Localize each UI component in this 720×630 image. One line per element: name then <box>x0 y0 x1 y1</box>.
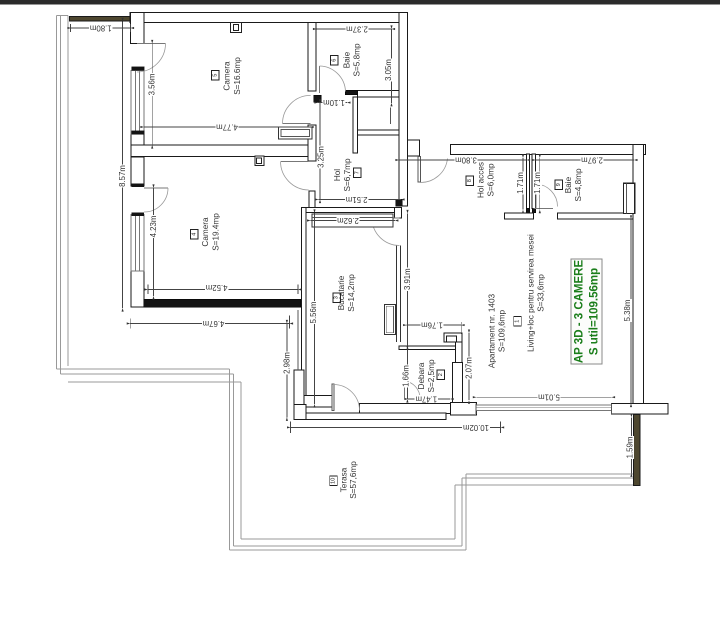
svg-text:S=19.4mp: S=19.4mp <box>212 213 221 251</box>
svg-text:2.97m: 2.97m <box>581 156 603 165</box>
svg-text:1.80m: 1.80m <box>90 24 112 33</box>
svg-text:AP 3D - 3 CAMERE: AP 3D - 3 CAMERE <box>574 260 586 364</box>
svg-text:3.25m: 3.25m <box>317 146 326 168</box>
svg-text:Camera: Camera <box>201 217 210 247</box>
svg-text:S=2,5mp: S=2,5mp <box>427 359 436 392</box>
svg-text:Hol acces: Hol acces <box>477 162 486 198</box>
svg-text:S=33,6mp: S=33,6mp <box>537 274 546 312</box>
svg-text:2.51m: 2.51m <box>346 195 368 204</box>
svg-text:2.98m: 2.98m <box>282 352 291 374</box>
svg-text:1.71m: 1.71m <box>533 172 542 194</box>
svg-text:2.37m: 2.37m <box>346 25 368 34</box>
svg-text:2.07m: 2.07m <box>465 357 474 379</box>
svg-text:Bucatarie: Bucatarie <box>337 275 346 310</box>
svg-text:2.62m: 2.62m <box>337 216 359 225</box>
svg-text:1.71m: 1.71m <box>516 172 525 194</box>
svg-text:S util=109.56mp: S util=109.56mp <box>589 268 601 355</box>
svg-text:Debara: Debara <box>417 362 426 389</box>
svg-text:3.91m: 3.91m <box>403 268 412 290</box>
svg-text:9: 9 <box>556 183 562 186</box>
svg-text:S=6,0mp: S=6,0mp <box>487 163 496 196</box>
svg-text:4.23m: 4.23m <box>149 216 158 238</box>
svg-text:1.47m: 1.47m <box>415 395 437 404</box>
svg-text:4.77m: 4.77m <box>216 123 238 132</box>
svg-text:3.56m: 3.56m <box>148 74 157 96</box>
svg-text:6: 6 <box>331 59 337 62</box>
svg-text:7: 7 <box>354 171 360 174</box>
svg-text:1: 1 <box>514 320 520 323</box>
svg-text:Hol: Hol <box>333 169 342 181</box>
svg-text:S=57,6mp: S=57,6mp <box>349 461 358 499</box>
svg-text:1.76m: 1.76m <box>421 321 443 330</box>
svg-text:S=6,7mp: S=6,7mp <box>343 158 352 191</box>
svg-text:S=109,6mp: S=109,6mp <box>498 310 507 353</box>
svg-text:8.57m: 8.57m <box>118 165 127 187</box>
svg-text:2: 2 <box>438 373 444 376</box>
svg-text:5.56m: 5.56m <box>309 302 318 324</box>
svg-text:1.10m: 1.10m <box>323 98 345 107</box>
svg-text:1.59m: 1.59m <box>625 437 634 459</box>
svg-text:Apartament nr. 1403: Apartament nr. 1403 <box>488 293 497 368</box>
svg-text:Camera: Camera <box>223 61 232 91</box>
svg-text:5.01m: 5.01m <box>538 393 560 402</box>
svg-text:Living+loc pentru servirea mes: Living+loc pentru servirea mesei <box>527 234 536 352</box>
svg-text:10.02m: 10.02m <box>463 423 489 432</box>
svg-text:S=14,2mp: S=14,2mp <box>347 274 356 312</box>
svg-text:5.38m: 5.38m <box>623 300 632 322</box>
svg-text:S=16.6mp: S=16.6mp <box>233 57 242 95</box>
svg-text:Baie: Baie <box>564 176 573 193</box>
svg-text:S=5.8mp: S=5.8mp <box>353 43 362 76</box>
svg-text:4.52m: 4.52m <box>206 283 228 292</box>
svg-text:1.66m: 1.66m <box>402 365 411 387</box>
svg-text:5: 5 <box>212 74 218 77</box>
svg-text:3.80m: 3.80m <box>455 156 477 165</box>
svg-text:10: 10 <box>330 478 336 484</box>
svg-text:Baie: Baie <box>343 51 352 68</box>
svg-text:8: 8 <box>467 179 473 182</box>
svg-text:S=4,8mp: S=4,8mp <box>574 168 583 201</box>
svg-text:4.67m: 4.67m <box>203 319 225 328</box>
svg-text:Terasa: Terasa <box>340 467 349 492</box>
svg-text:4: 4 <box>191 233 197 236</box>
svg-text:3.05m: 3.05m <box>384 59 393 81</box>
